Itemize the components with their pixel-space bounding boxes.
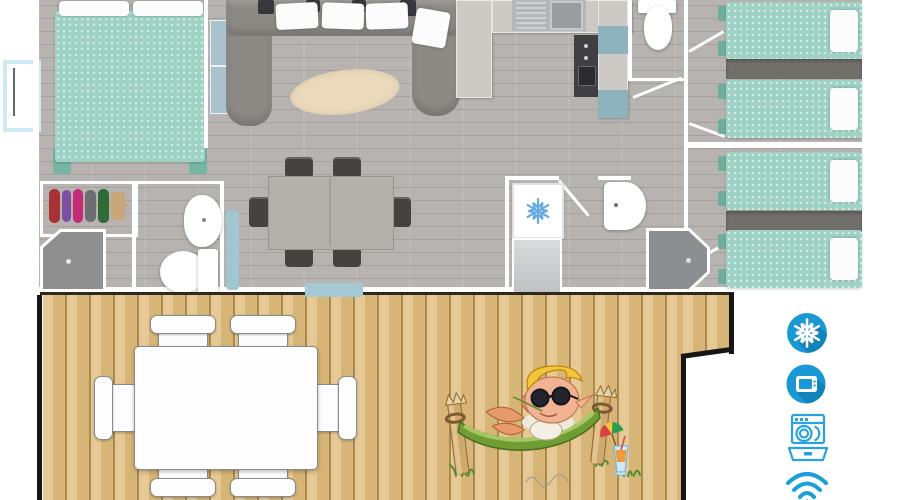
blue-accent-panel	[598, 90, 628, 118]
oven-window	[578, 66, 596, 86]
pillow	[411, 7, 451, 48]
toilet-tank	[198, 249, 218, 293]
amenity-wifi	[784, 468, 830, 500]
shower-tray	[649, 231, 707, 289]
mascot-illustration	[428, 350, 650, 496]
wifi-icon	[784, 468, 830, 500]
outdoor-chair	[230, 315, 296, 334]
outdoor-chair	[150, 478, 216, 497]
clothes-item	[85, 190, 96, 222]
outdoor-chair	[94, 376, 113, 440]
wall	[628, 0, 632, 80]
storage-box	[111, 192, 125, 220]
deck-border	[729, 293, 734, 354]
shower-tray	[43, 232, 103, 289]
shower-drain	[686, 258, 691, 263]
dining-chair	[333, 157, 361, 178]
washbasin	[184, 195, 222, 247]
blue-accent-panel	[598, 26, 628, 54]
pillow	[830, 238, 858, 280]
washbasin	[604, 182, 646, 230]
window-frame-line	[13, 68, 15, 116]
table-seam	[329, 178, 331, 246]
dining-chair	[249, 197, 270, 227]
kitchen-cabinet	[456, 0, 492, 98]
outdoor-chair	[230, 478, 296, 497]
headboard-shelf	[726, 211, 862, 231]
pillow	[322, 2, 365, 29]
headboard-shelf	[726, 59, 862, 79]
wardrobe	[40, 181, 138, 237]
snowflake-icon	[786, 312, 828, 354]
air-conditioning-unit	[512, 183, 564, 239]
tv-icon	[784, 363, 828, 405]
sink-basin	[550, 1, 583, 30]
entrance-step	[305, 283, 363, 297]
bath-mat	[226, 210, 239, 290]
pillow	[133, 1, 203, 16]
pillow	[275, 2, 318, 30]
wall	[598, 176, 631, 180]
wall	[204, 0, 208, 148]
clothes-item	[49, 189, 60, 223]
deck-border	[37, 295, 42, 500]
pillow	[830, 10, 858, 52]
cooker-knob	[584, 56, 588, 60]
floor-plan-render	[0, 0, 900, 500]
dining-chair	[285, 157, 313, 178]
amenity-dishwasher	[785, 412, 831, 466]
amenity-television	[784, 363, 828, 409]
clothes-item	[73, 189, 83, 223]
clothes-item	[98, 189, 109, 223]
shower-drain	[66, 259, 71, 264]
wall	[33, 0, 39, 292]
sink-drainer	[516, 2, 546, 29]
outdoor-table	[134, 346, 318, 470]
deck-border	[681, 357, 686, 500]
faucet	[614, 203, 618, 207]
wall	[505, 176, 559, 180]
wall	[505, 176, 509, 292]
outdoor-chair	[150, 315, 216, 334]
pillow	[59, 1, 129, 16]
corner-shower	[40, 229, 106, 292]
wall	[220, 181, 224, 292]
snowflake-icon	[521, 194, 555, 228]
cooker-knob	[584, 44, 588, 48]
kitchen-sink	[512, 0, 586, 31]
cooker-column	[574, 35, 598, 97]
pillow	[830, 88, 858, 130]
outdoor-chair	[338, 376, 357, 440]
double-bed	[55, 10, 205, 162]
pillow	[366, 2, 409, 29]
amenity-air-conditioning	[786, 312, 828, 358]
pillow	[830, 160, 858, 202]
faucet	[202, 218, 206, 222]
deck-edge	[40, 292, 734, 295]
dishwasher-icon	[785, 412, 831, 462]
wall	[132, 181, 136, 292]
wall	[688, 142, 868, 148]
sofa-dark-cushion	[258, 0, 274, 14]
wall	[134, 181, 224, 184]
washer-column	[512, 238, 562, 296]
toilet-bowl	[644, 6, 672, 50]
clothes-item	[62, 190, 71, 222]
dining-table	[268, 176, 394, 250]
